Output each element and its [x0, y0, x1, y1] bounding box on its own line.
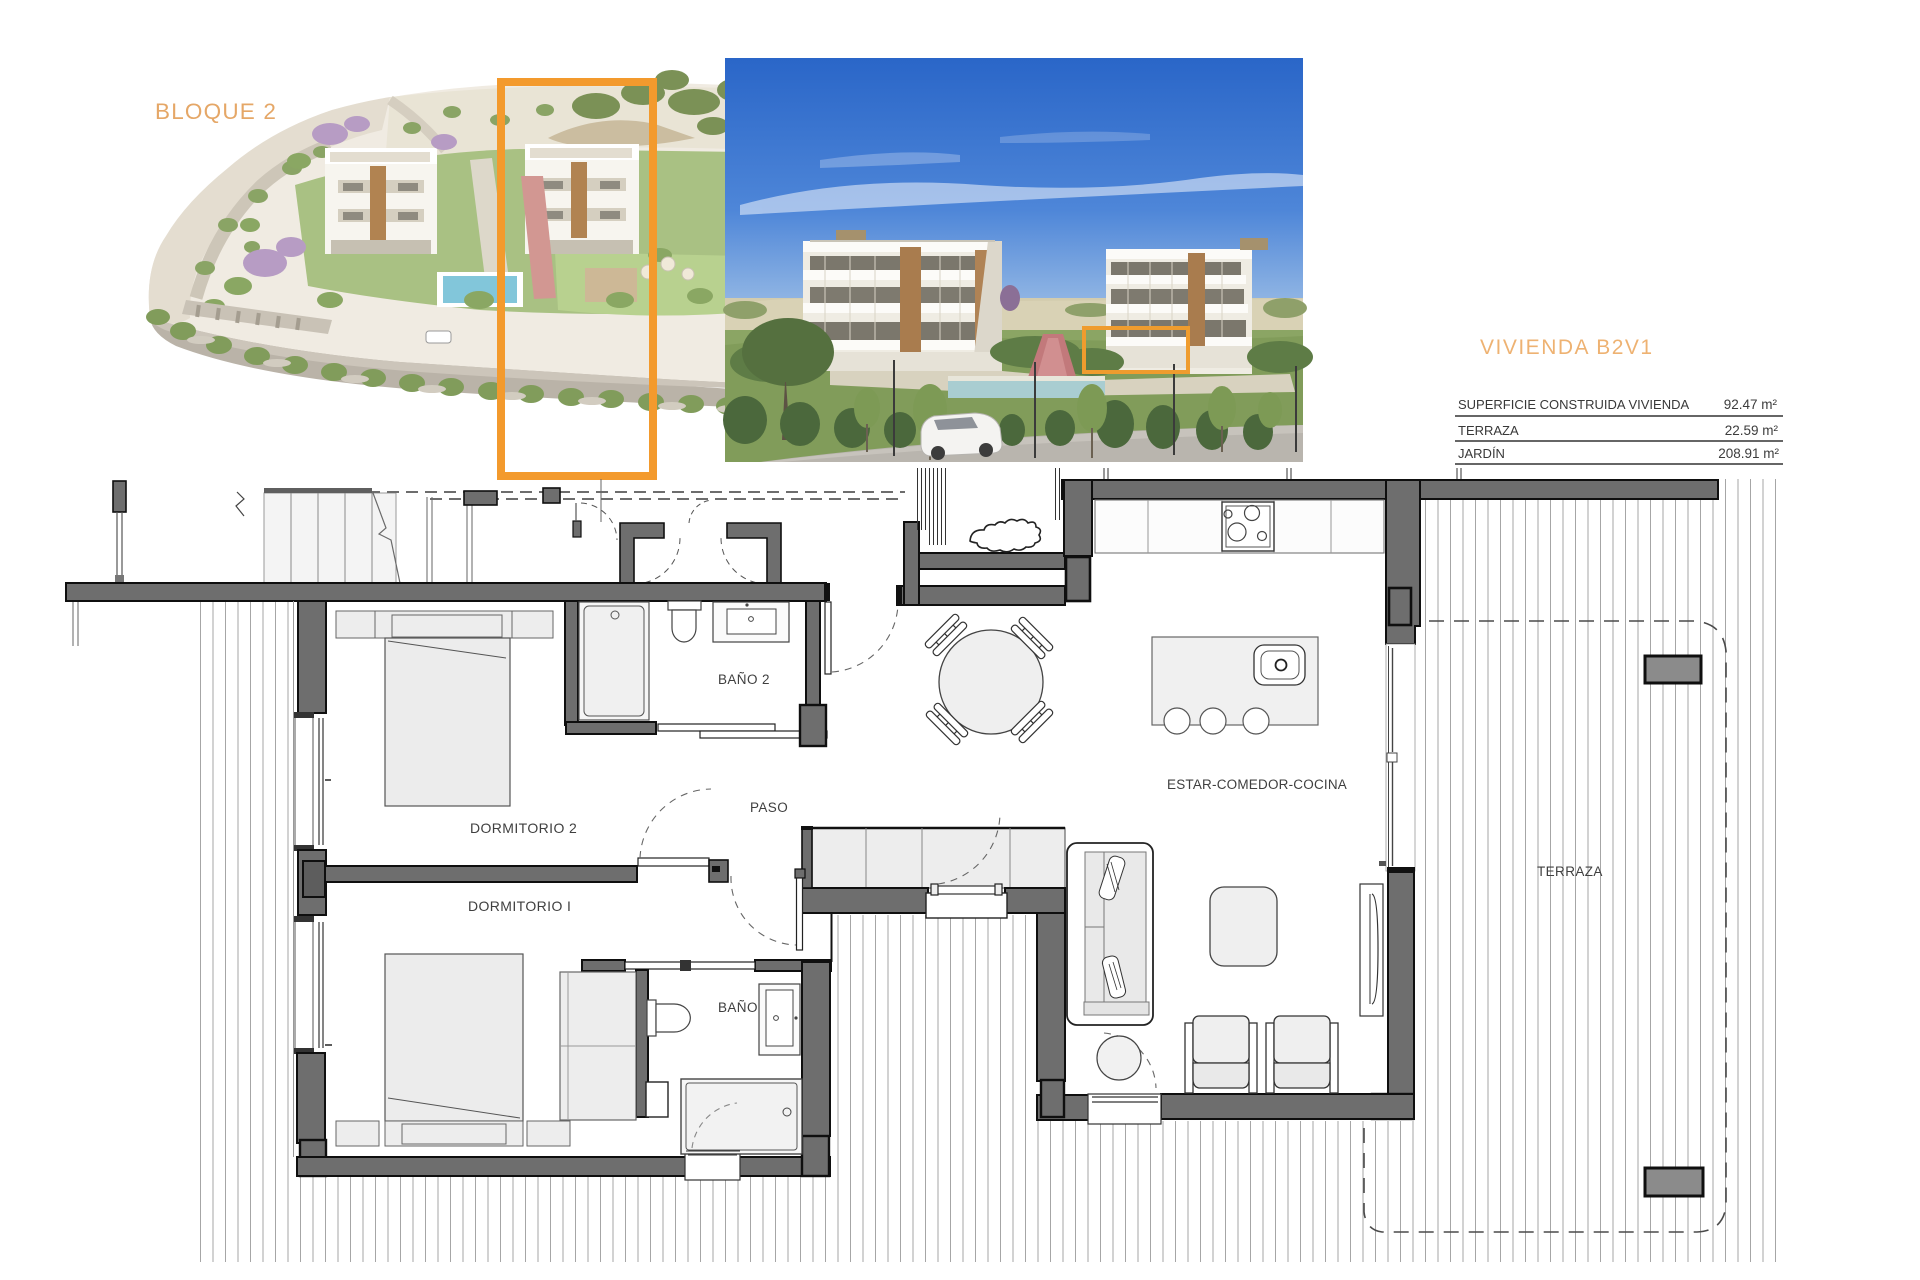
svg-text:SUPERFICIE CONSTRUIDA VIVIENDA: SUPERFICIE CONSTRUIDA VIVIENDA	[1458, 397, 1689, 412]
svg-text:BLOQUE 2: BLOQUE 2	[155, 99, 277, 124]
svg-text:92.47 m²: 92.47 m²	[1724, 397, 1778, 412]
svg-text:22.59 m²: 22.59 m²	[1725, 423, 1779, 438]
svg-text:208.91 m²: 208.91 m²	[1718, 446, 1779, 461]
svg-text:BAÑO: BAÑO	[718, 1000, 758, 1015]
svg-text:VIVIENDA B2V1: VIVIENDA B2V1	[1480, 336, 1654, 359]
svg-text:ESTAR-COMEDOR-COCINA: ESTAR-COMEDOR-COCINA	[1167, 777, 1347, 792]
svg-text:JARDÍN: JARDÍN	[1458, 446, 1505, 461]
svg-text:TERRAZA: TERRAZA	[1537, 864, 1603, 879]
svg-text:DORMITORIO I: DORMITORIO I	[468, 898, 571, 914]
svg-text:TERRAZA: TERRAZA	[1458, 423, 1519, 438]
svg-text:PASO: PASO	[750, 800, 788, 815]
svg-text:DORMITORIO 2: DORMITORIO 2	[470, 820, 577, 836]
svg-text:BAÑO 2: BAÑO 2	[718, 672, 770, 687]
